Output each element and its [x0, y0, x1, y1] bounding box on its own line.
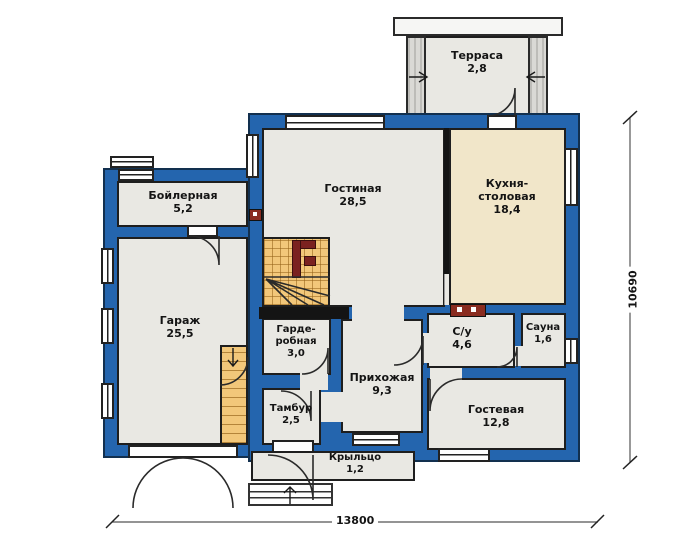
room-kitchen-name: Кухня- столовая	[452, 178, 562, 204]
room-bathroom-area: 4,6	[432, 339, 492, 352]
dim-tick-rb	[623, 456, 637, 469]
door-boiler-garage	[187, 225, 218, 237]
room-sauna-label: Сауна 1,6	[519, 322, 567, 346]
window-hall-bottom	[352, 433, 400, 446]
window-kitchen-right	[564, 148, 578, 206]
stairs-railing-post	[292, 240, 301, 278]
terrace-roof-slab	[393, 17, 563, 36]
door-garage-gate	[128, 445, 238, 458]
porch-steps	[248, 483, 333, 506]
window-garage-3	[101, 383, 114, 419]
vent-cell-3	[253, 212, 257, 216]
dim-tick-br	[591, 515, 604, 528]
room-wardrobe-area: 3,0	[264, 348, 328, 360]
vent-block-kitchen	[450, 304, 486, 317]
terrace-column-left	[406, 36, 426, 116]
room-kitchen-label: Кухня- столовая 18,4	[452, 178, 562, 217]
vent-cell-2	[471, 307, 476, 312]
doorway-hall-bathroom	[423, 333, 429, 363]
room-terrace	[406, 36, 548, 116]
room-boiler-label: Бойлерная 5,2	[118, 190, 248, 216]
dimension-height-label: 10690	[627, 266, 640, 312]
room-hall-label: Прихожая 9,3	[339, 372, 425, 398]
stairs-railing-newel	[304, 256, 316, 266]
window-guest-bottom	[438, 448, 490, 462]
room-kitchen-area: 18,4	[452, 204, 562, 217]
door-terrace	[487, 115, 517, 130]
vent-cell-1	[457, 307, 462, 312]
window-boiler	[118, 169, 154, 181]
room-bathroom-label: С/у 4,6	[432, 326, 492, 352]
window-garage-2	[101, 308, 114, 344]
room-vestibule-name: Тамбур	[261, 403, 321, 415]
wall-below-stairs	[259, 307, 349, 319]
room-vestibule-label: Тамбур 2,5	[261, 403, 321, 427]
room-wardrobe-label: Гарде- робная 3,0	[264, 324, 328, 359]
opening-living-kitchen	[444, 274, 449, 305]
partition-living-kitchen	[444, 128, 449, 274]
doorway-wardrobe	[300, 373, 328, 390]
dim-tick-bl	[106, 515, 119, 528]
room-porch-name: Крыльцо	[315, 452, 395, 464]
room-guest-label: Гостевая 12,8	[446, 404, 546, 430]
floor-plan-canvas: Терраса 2,8 Бойлерная 5,2 Гостиная 28,5 …	[0, 0, 700, 545]
room-living-area: 28,5	[303, 196, 403, 209]
doorway-bathroom-sauna	[515, 346, 523, 366]
door-arc-garage-gate	[133, 458, 233, 508]
room-wardrobe-name: Гарде- робная	[264, 324, 328, 348]
room-sauna-name: Сауна	[519, 322, 567, 334]
room-garage-label: Гараж 25,5	[130, 315, 230, 341]
window-garage-1	[101, 248, 114, 284]
opening-living-hall	[352, 305, 404, 321]
dimension-width-label: 13800	[332, 514, 378, 527]
terrace-column-right	[528, 36, 548, 116]
room-vestibule-area: 2,5	[261, 415, 321, 427]
room-porch-area: 1,2	[315, 464, 395, 476]
room-porch-label: Крыльцо 1,2	[315, 452, 395, 476]
room-boiler-area: 5,2	[118, 203, 248, 216]
room-hall-area: 9,3	[339, 385, 425, 398]
window-living-top	[285, 115, 385, 130]
vent-block-boiler	[249, 209, 262, 221]
garage-step-strip	[220, 345, 248, 445]
window-living-left	[246, 134, 259, 178]
room-sauna-area: 1,6	[519, 334, 567, 346]
window-boiler-outer	[110, 156, 154, 168]
doorway-hall-guest	[430, 368, 462, 380]
room-terrace-area: 2,8	[427, 63, 527, 76]
room-living-label: Гостиная 28,5	[303, 183, 403, 209]
room-garage-area: 25,5	[130, 328, 230, 341]
room-guest-area: 12,8	[446, 417, 546, 430]
room-terrace-label: Терраса 2,8	[427, 50, 527, 76]
dim-tick-rt	[623, 111, 637, 124]
